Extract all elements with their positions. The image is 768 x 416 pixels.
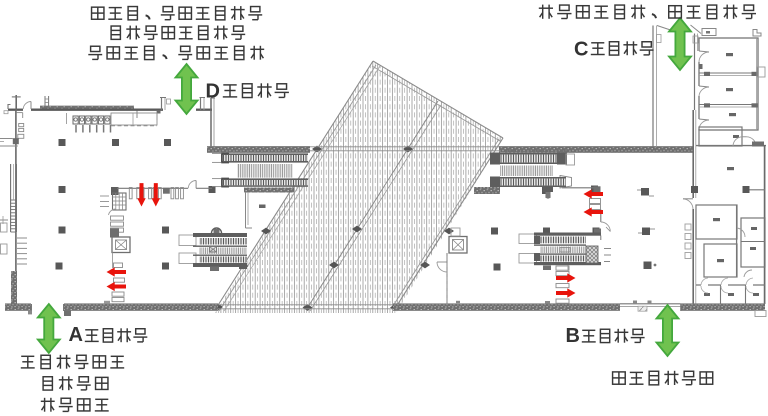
svg-text:D: D bbox=[206, 81, 220, 103]
svg-text:C: C bbox=[574, 39, 588, 61]
svg-text:A: A bbox=[69, 324, 83, 346]
svg-text:B: B bbox=[566, 325, 580, 347]
